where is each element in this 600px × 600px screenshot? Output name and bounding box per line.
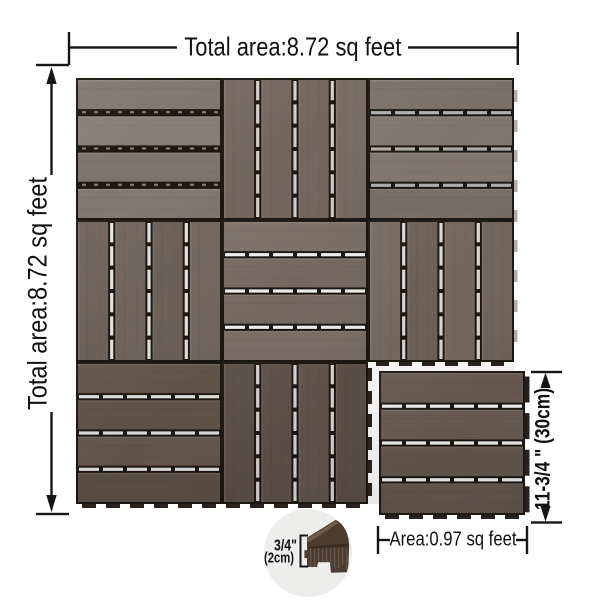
svg-text:Area:0.97 sq feet: Area:0.97 sq feet bbox=[390, 529, 517, 551]
svg-text:Total area:8.72 sq feet: Total area:8.72 sq feet bbox=[184, 32, 402, 62]
svg-text:(2cm): (2cm) bbox=[264, 550, 294, 567]
svg-text:Total area:8.72 sq feet: Total area:8.72 sq feet bbox=[23, 177, 53, 410]
svg-text:11-3/4 " (30cm): 11-3/4 " (30cm) bbox=[532, 388, 555, 510]
